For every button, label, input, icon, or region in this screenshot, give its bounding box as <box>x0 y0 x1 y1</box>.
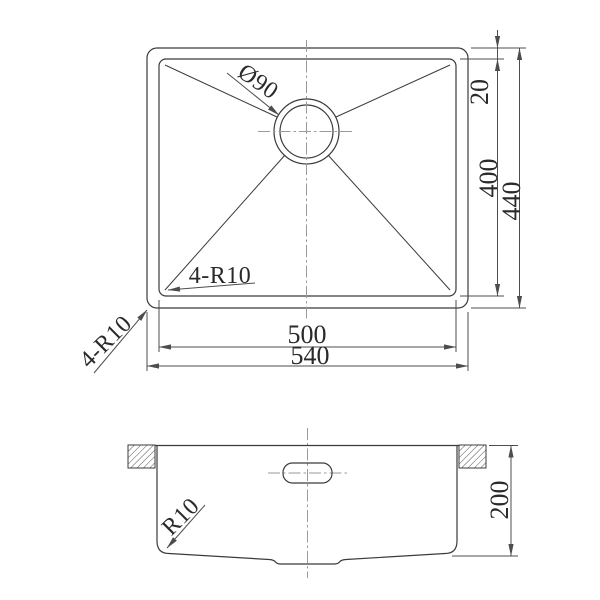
leader-lines <box>94 73 279 548</box>
rim-offset-dimension: 20 <box>467 79 493 105</box>
extension-lines <box>147 48 526 556</box>
sink-technical-drawing: Ø90 20 400 440 4-R10 4-R10 500 540 R10 2… <box>0 0 600 600</box>
overall-length-dimension: 540 <box>291 343 330 369</box>
bowl-opening-outline <box>159 59 456 296</box>
center-lines <box>258 40 355 578</box>
overall-width-dimension: 440 <box>499 182 525 221</box>
bowl-corner-radius-label: 4-R10 <box>189 264 252 288</box>
dimension-lines <box>147 30 520 556</box>
bowl-depth-dimension: 200 <box>487 481 513 520</box>
countertop-hatch-left <box>128 445 155 468</box>
countertop-hatch-right <box>459 445 486 468</box>
